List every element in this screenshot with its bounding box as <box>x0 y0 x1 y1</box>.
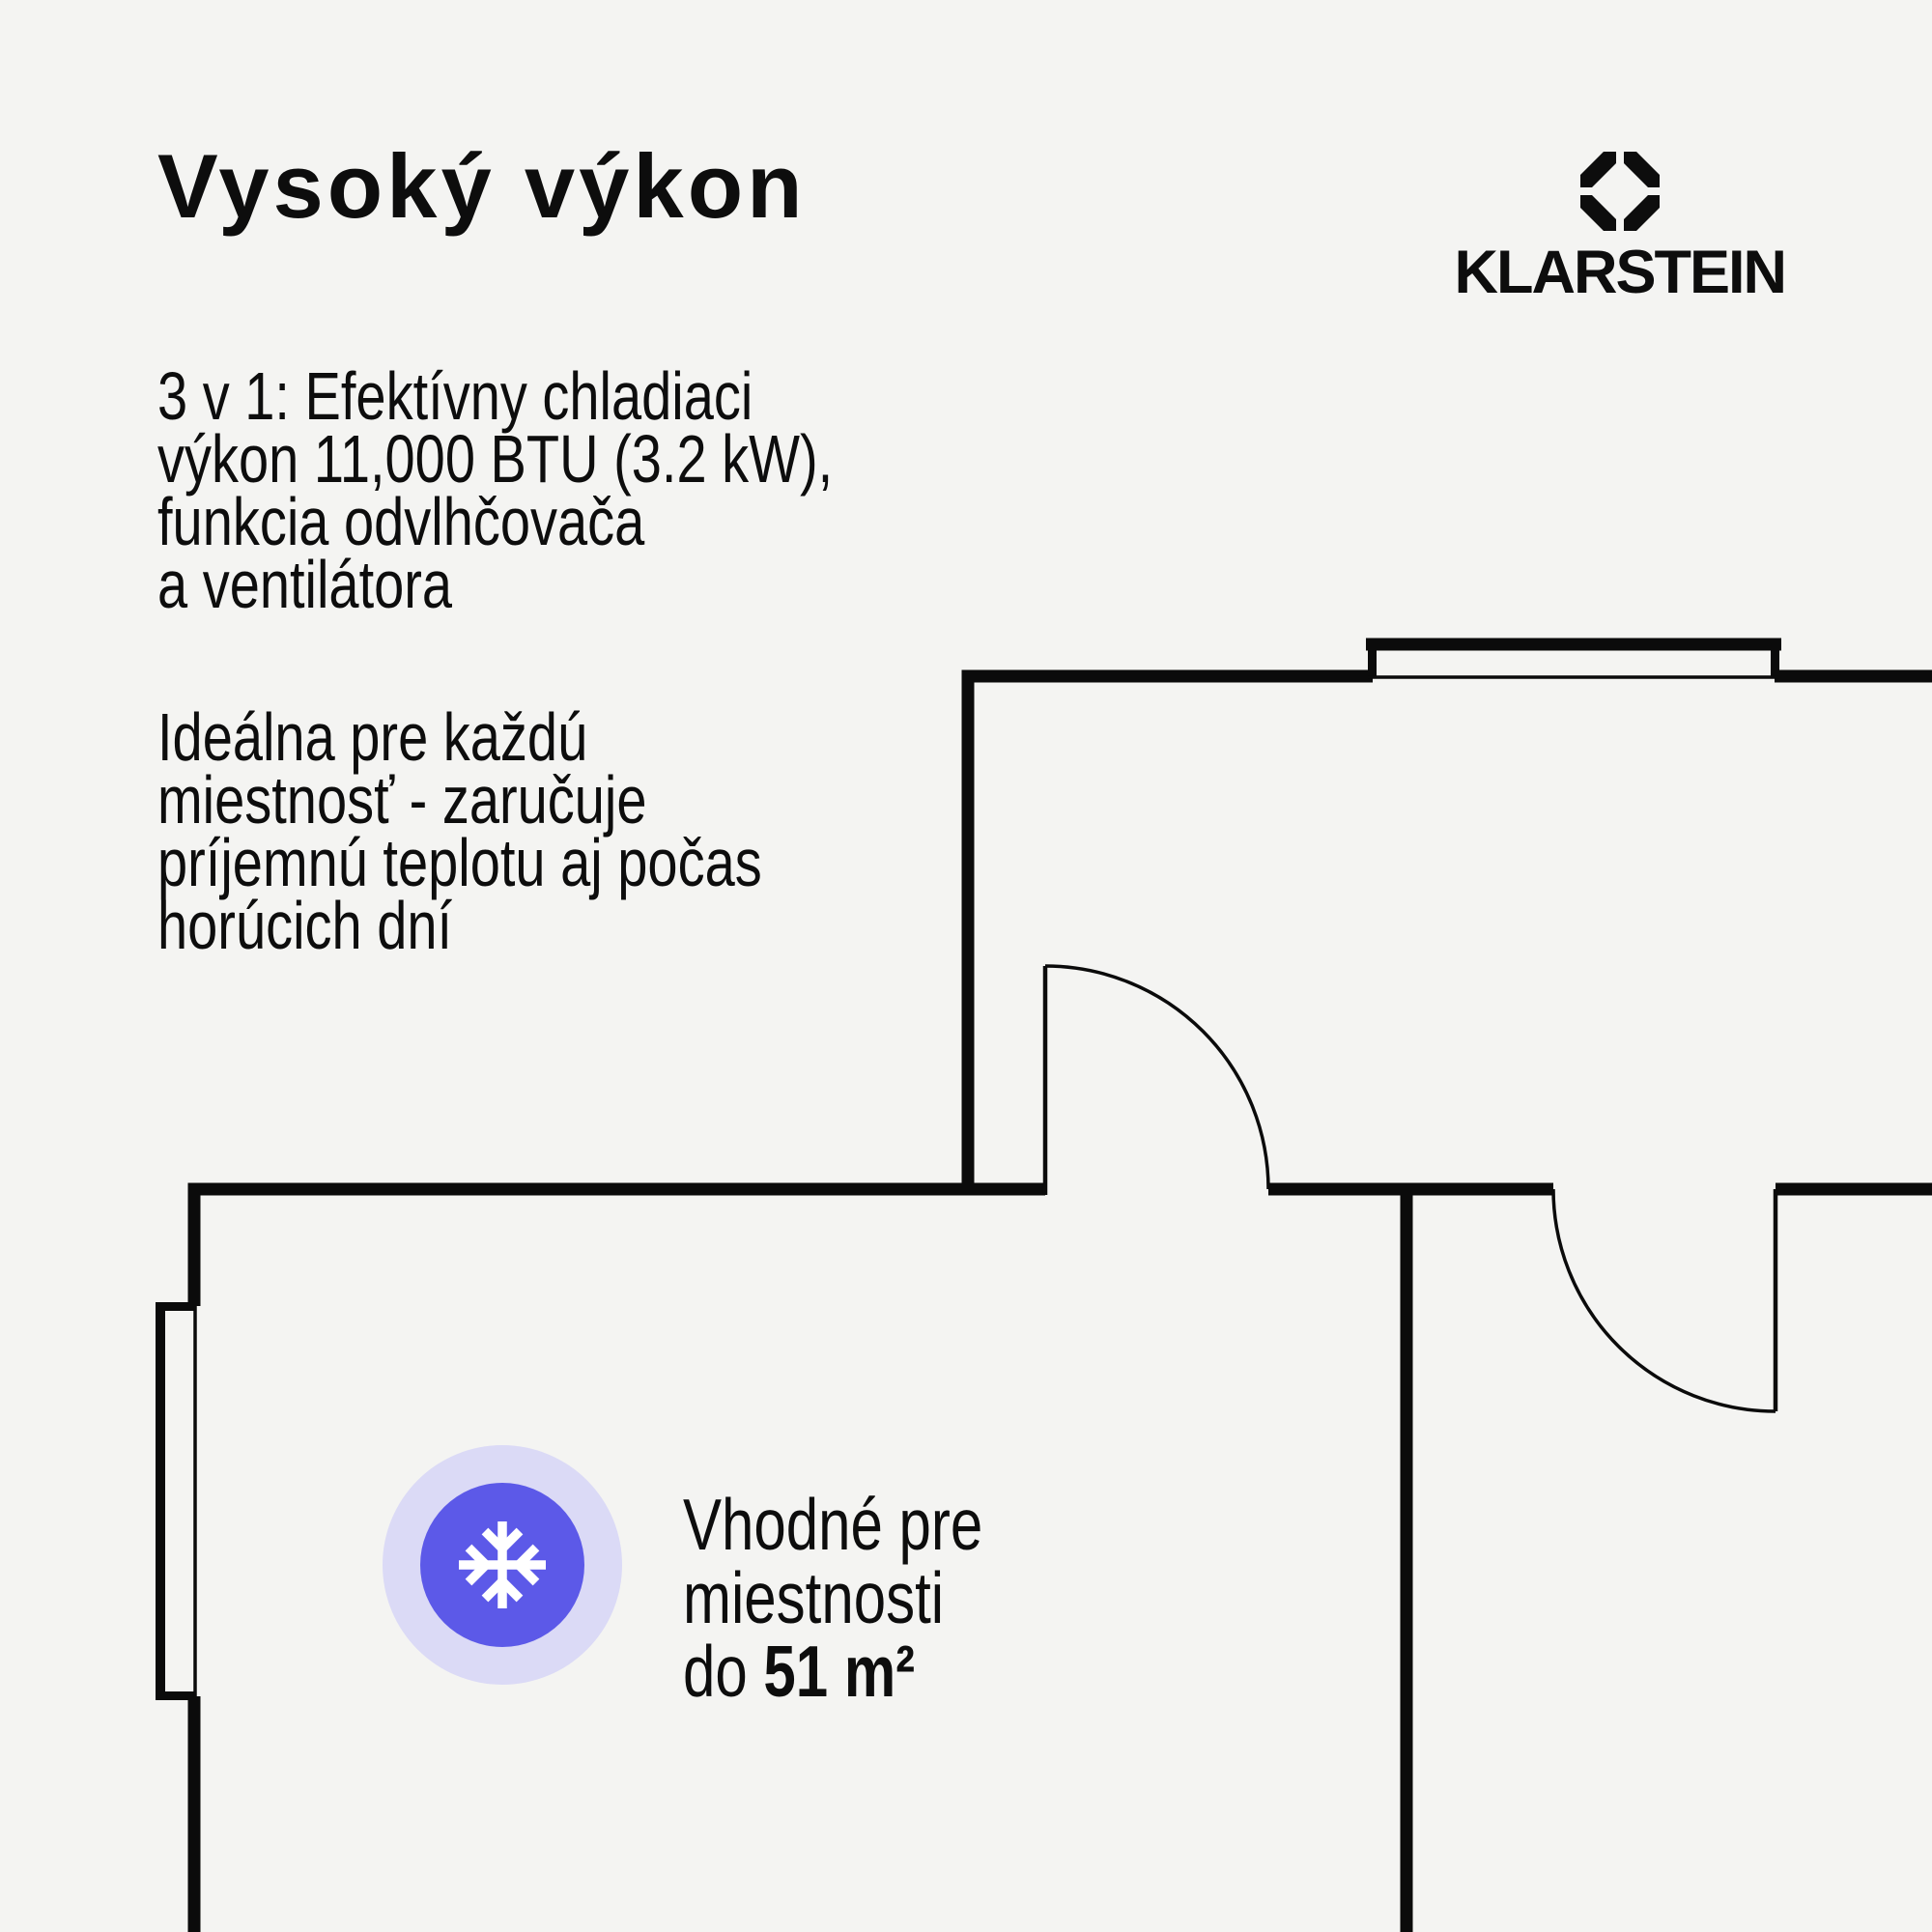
intro-line: a ventilátora <box>157 554 833 616</box>
secondary-line: Ideálna pre každú <box>157 706 762 769</box>
caption-line: do 51 m² <box>683 1634 982 1708</box>
caption-prefix: do <box>683 1631 763 1712</box>
page-title: Vysoký výkon <box>157 141 807 232</box>
room-size-value: 51 m² <box>763 1631 915 1712</box>
intro-line: funkcia odvlhčovača <box>157 491 833 554</box>
brand-wordmark: KLARSTEIN <box>1455 244 1786 300</box>
door-swing-right <box>1553 1189 1776 1411</box>
room-size-caption: Vhodné pre miestnosti do 51 m² <box>683 1488 982 1708</box>
intro-line: výkon 11,000 BTU (3.2 kW), <box>157 428 833 491</box>
secondary-paragraph: Ideálna pre každú miestnosť - zaručuje p… <box>157 706 762 957</box>
caption-line: Vhodné pre <box>683 1488 982 1561</box>
cooling-badge <box>367 1430 638 1700</box>
intro-line: 3 v 1: Efektívny chladiaci <box>157 365 833 428</box>
caption-line: miestnosti <box>683 1561 982 1634</box>
brand-logo: KLARSTEIN <box>1455 152 1786 300</box>
klarstein-octagon-icon <box>1580 152 1660 231</box>
window-left <box>156 1302 196 1700</box>
door-swing-top <box>1045 966 1268 1195</box>
secondary-line: horúcich dní <box>157 895 762 957</box>
secondary-line: príjemnú teplotu aj počas <box>157 832 762 895</box>
secondary-line: miestnosť - zaručuje <box>157 769 762 832</box>
intro-paragraph: 3 v 1: Efektívny chladiaci výkon 11,000 … <box>157 365 833 616</box>
upper-room-walls <box>962 670 1932 1196</box>
window-top <box>1366 639 1781 677</box>
